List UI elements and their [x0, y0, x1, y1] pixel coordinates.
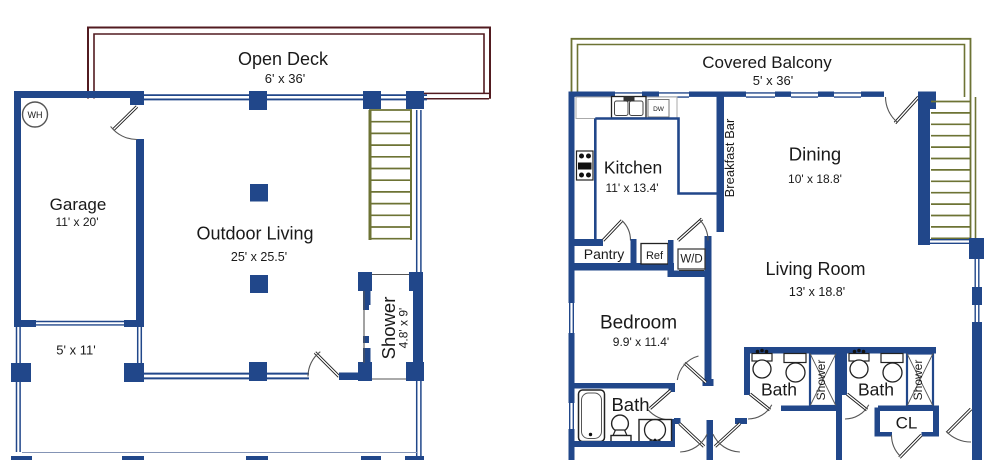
svg-text:W/D: W/D: [680, 254, 702, 266]
svg-text:10' x 18.8': 10' x 18.8': [788, 172, 842, 186]
svg-text:Pantry: Pantry: [584, 246, 624, 262]
svg-text:CL: CL: [896, 414, 918, 433]
svg-text:5' x 36': 5' x 36': [753, 73, 793, 88]
svg-text:Bedroom: Bedroom: [600, 313, 677, 334]
svg-text:Outdoor Living: Outdoor Living: [196, 224, 313, 244]
svg-text:5' x 11': 5' x 11': [56, 343, 95, 358]
svg-text:Living Room: Living Room: [765, 259, 865, 279]
svg-text:11' x 13.4': 11' x 13.4': [605, 181, 658, 195]
svg-text:Bath: Bath: [611, 394, 649, 415]
svg-text:Garage: Garage: [50, 195, 107, 214]
svg-text:Bath: Bath: [858, 380, 894, 400]
svg-text:25' x 25.5': 25' x 25.5': [231, 250, 287, 264]
svg-text:11' x 20': 11' x 20': [55, 215, 98, 229]
svg-text:DW: DW: [653, 106, 665, 113]
svg-text:Ref: Ref: [646, 250, 664, 262]
svg-text:Dining: Dining: [789, 144, 841, 165]
svg-text:Bath: Bath: [761, 380, 797, 400]
svg-text:13' x 18.8': 13' x 18.8': [789, 285, 845, 299]
svg-text:Breakfast Bar: Breakfast Bar: [722, 118, 737, 197]
svg-text:WH: WH: [28, 110, 43, 120]
svg-text:6' x 36': 6' x 36': [265, 71, 305, 86]
svg-text:Kitchen: Kitchen: [604, 158, 662, 178]
svg-text:9.9' x 11.4': 9.9' x 11.4': [613, 335, 669, 349]
svg-text:Covered Balcony: Covered Balcony: [702, 53, 832, 72]
svg-text:Open Deck: Open Deck: [238, 49, 329, 69]
svg-text:Shower: Shower: [814, 360, 828, 401]
svg-text:4.8' x 9': 4.8' x 9': [397, 308, 411, 349]
svg-text:Shower: Shower: [911, 360, 925, 401]
